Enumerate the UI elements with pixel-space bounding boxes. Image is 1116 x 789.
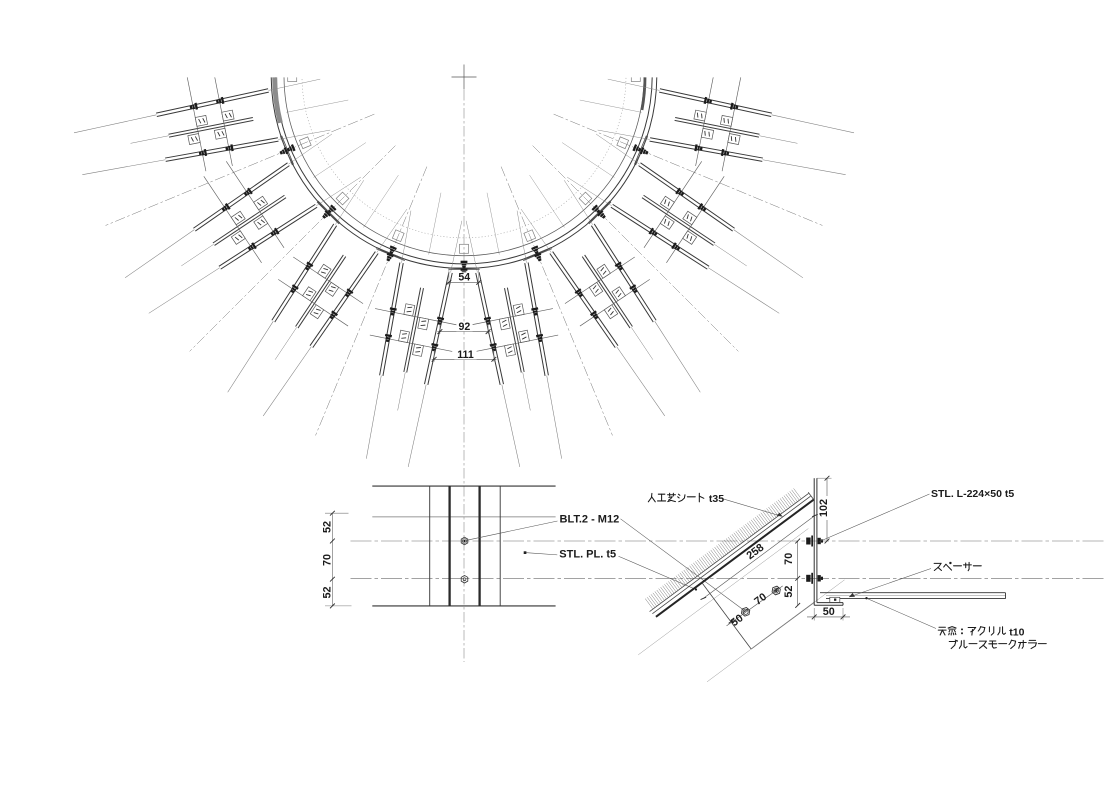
svg-text:102: 102 (818, 499, 830, 517)
svg-text:52: 52 (322, 521, 334, 533)
svg-text:52: 52 (783, 586, 795, 598)
svg-text:70: 70 (783, 553, 795, 565)
svg-text:70: 70 (322, 554, 334, 566)
svg-text:BLT.2 - M12: BLT.2 - M12 (560, 514, 620, 526)
svg-text:t10: t10 (1009, 627, 1024, 639)
svg-text:STL. L-224×50 t5: STL. L-224×50 t5 (931, 488, 1014, 500)
svg-text:52: 52 (322, 586, 334, 598)
svg-text:92: 92 (459, 321, 471, 333)
svg-text:STL. PL. t5: STL. PL. t5 (559, 548, 616, 560)
svg-text:50: 50 (823, 606, 835, 618)
svg-text:t35: t35 (709, 493, 724, 505)
svg-text:111: 111 (457, 349, 474, 361)
svg-text:54: 54 (458, 272, 470, 284)
